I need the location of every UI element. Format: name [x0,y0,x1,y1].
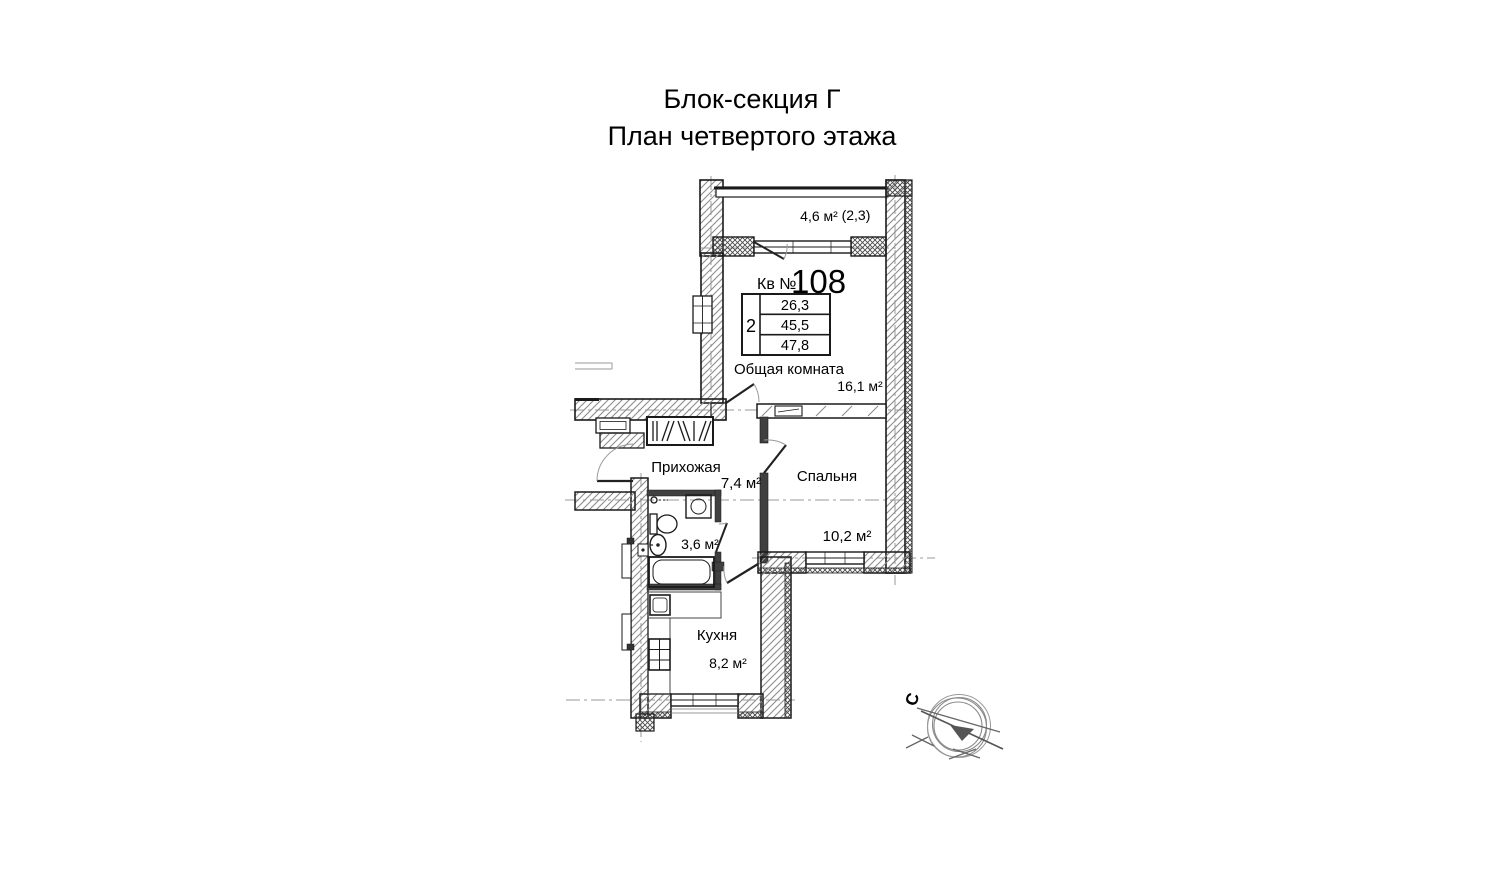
apartment-info: Кв № 108 2 26,3 45,5 47,8 [742,263,846,355]
bathroom-area: 3,6 м² [681,536,719,552]
bedroom-door-leaf [764,445,786,473]
kitchen-label: Кухня [697,627,737,644]
stove-icon [649,639,670,670]
floorplan-page: Блок-секция Г План четвертого этажа [0,0,1500,875]
wall-right-exterior [886,180,905,573]
balcony-area: 4,6 м² [800,208,838,224]
hallway-label: Прихожая [651,459,721,476]
wall-right-insulation [905,180,912,573]
kitchen-door-leaf [727,564,758,583]
area-total-value: 45,5 [781,318,809,334]
floorplan-drawing: Блок-секция Г План четвертого этажа [0,0,1500,875]
living-door-leaf [726,384,754,403]
niche-entry [596,418,630,433]
walls [575,180,912,731]
living-room-area: 16,1 м² [837,378,883,394]
hallway-area: 7,4 м² [721,475,761,492]
wall-bedroom-left-lower [760,473,768,563]
rooms-count: 2 [746,316,756,336]
bathtub-icon [649,557,714,587]
wall-hallway-left [575,492,635,510]
riser-left-1 [622,544,631,578]
area-with-balcony-value: 47,8 [781,338,809,354]
kitchen-counter-top [648,592,721,618]
wall-bathroom-right-upper [715,490,721,522]
wall-bedroom-left-upper [760,417,768,443]
balcony-coefficient: (2,3) [842,207,871,223]
living-room-label: Общая комната [734,361,845,378]
kitchen-area: 8,2 м² [709,655,747,671]
compass-arrow-head [950,725,974,741]
wall-corner-step [636,714,654,731]
toilet-icon [650,514,657,534]
wall-left-exterior [631,478,648,718]
vent-living-bedroom [775,406,802,416]
washer-icon [686,495,711,518]
wall-balcony-parapet-right [851,237,886,256]
bedroom-area: 10,2 м² [823,528,872,545]
axis-lines [565,175,935,742]
compass-north-label: С [901,691,923,709]
title-line1: Блок-секция Г [664,84,841,114]
wardrobe [647,417,713,445]
balcony-window-unit [754,241,851,259]
north-compass: С [901,691,1003,759]
bedroom-label: Спальня [797,468,857,485]
area-living-value: 26,3 [781,298,809,314]
drawing-title: Блок-секция Г План четвертого этажа [608,84,898,151]
title-line2: План четвертого этажа [608,121,898,151]
